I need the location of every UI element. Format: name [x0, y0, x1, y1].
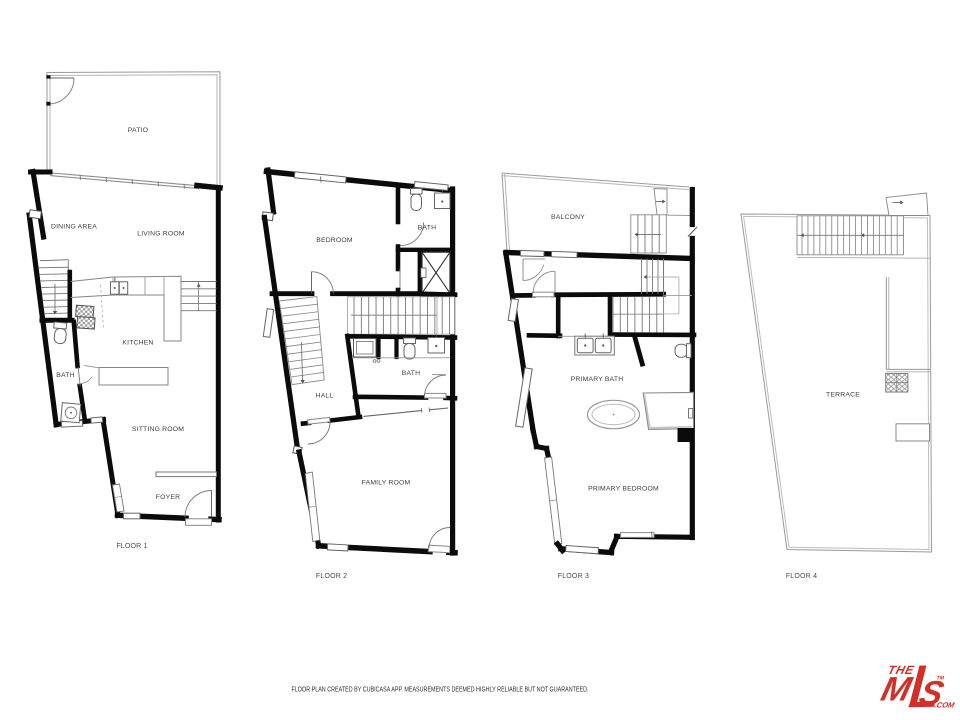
svg-text:BALCONY: BALCONY — [551, 214, 585, 221]
svg-text:FLOOR 2: FLOOR 2 — [316, 573, 347, 580]
svg-text:BATH: BATH — [56, 372, 74, 379]
svg-text:KITCHEN: KITCHEN — [122, 340, 153, 347]
svg-text:PRIMARY BATH: PRIMARY BATH — [571, 376, 624, 383]
svg-text:SITTING ROOM: SITTING ROOM — [132, 426, 184, 433]
svg-text:DINING AREA: DINING AREA — [51, 224, 97, 231]
svg-text:FAMILY ROOM: FAMILY ROOM — [362, 480, 411, 487]
svg-text:FOYER: FOYER — [156, 494, 180, 501]
svg-text:LIVING ROOM: LIVING ROOM — [137, 231, 185, 238]
svg-text:FLOOR 1: FLOOR 1 — [116, 543, 147, 550]
svg-text:BATH: BATH — [402, 370, 420, 377]
svg-text:HALL: HALL — [316, 393, 334, 400]
svg-text:BEDROOM: BEDROOM — [316, 237, 353, 244]
svg-text:.COM: .COM — [934, 701, 956, 710]
svg-text:FLOOR PLAN CREATED BY CUBICASA: FLOOR PLAN CREATED BY CUBICASA APP. MEAS… — [292, 687, 589, 694]
svg-text:PATIO: PATIO — [128, 127, 148, 134]
svg-text:PRIMARY BEDROOM: PRIMARY BEDROOM — [588, 486, 659, 493]
svg-text:FLOOR 3: FLOOR 3 — [558, 573, 589, 580]
svg-text:TERRACE: TERRACE — [826, 392, 860, 399]
svg-text:FLOOR 4: FLOOR 4 — [786, 573, 817, 580]
svg-text:BATH: BATH — [418, 225, 436, 232]
